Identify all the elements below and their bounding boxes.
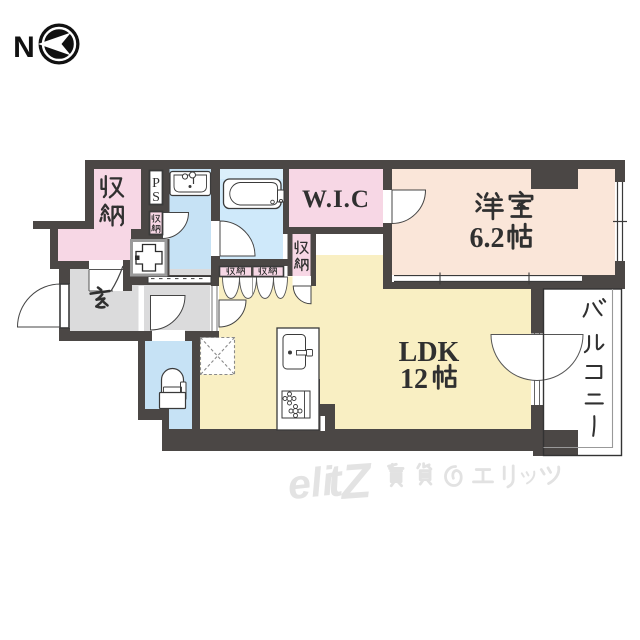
svg-text:12: 12: [400, 364, 428, 395]
svg-text:6.2: 6.2: [470, 223, 505, 254]
svg-text:Z: Z: [337, 454, 375, 510]
svg-text:N: N: [13, 31, 35, 64]
svg-text:W.I.C: W.I.C: [302, 186, 370, 213]
svg-text:S: S: [152, 190, 160, 205]
svg-text:P: P: [152, 176, 160, 191]
